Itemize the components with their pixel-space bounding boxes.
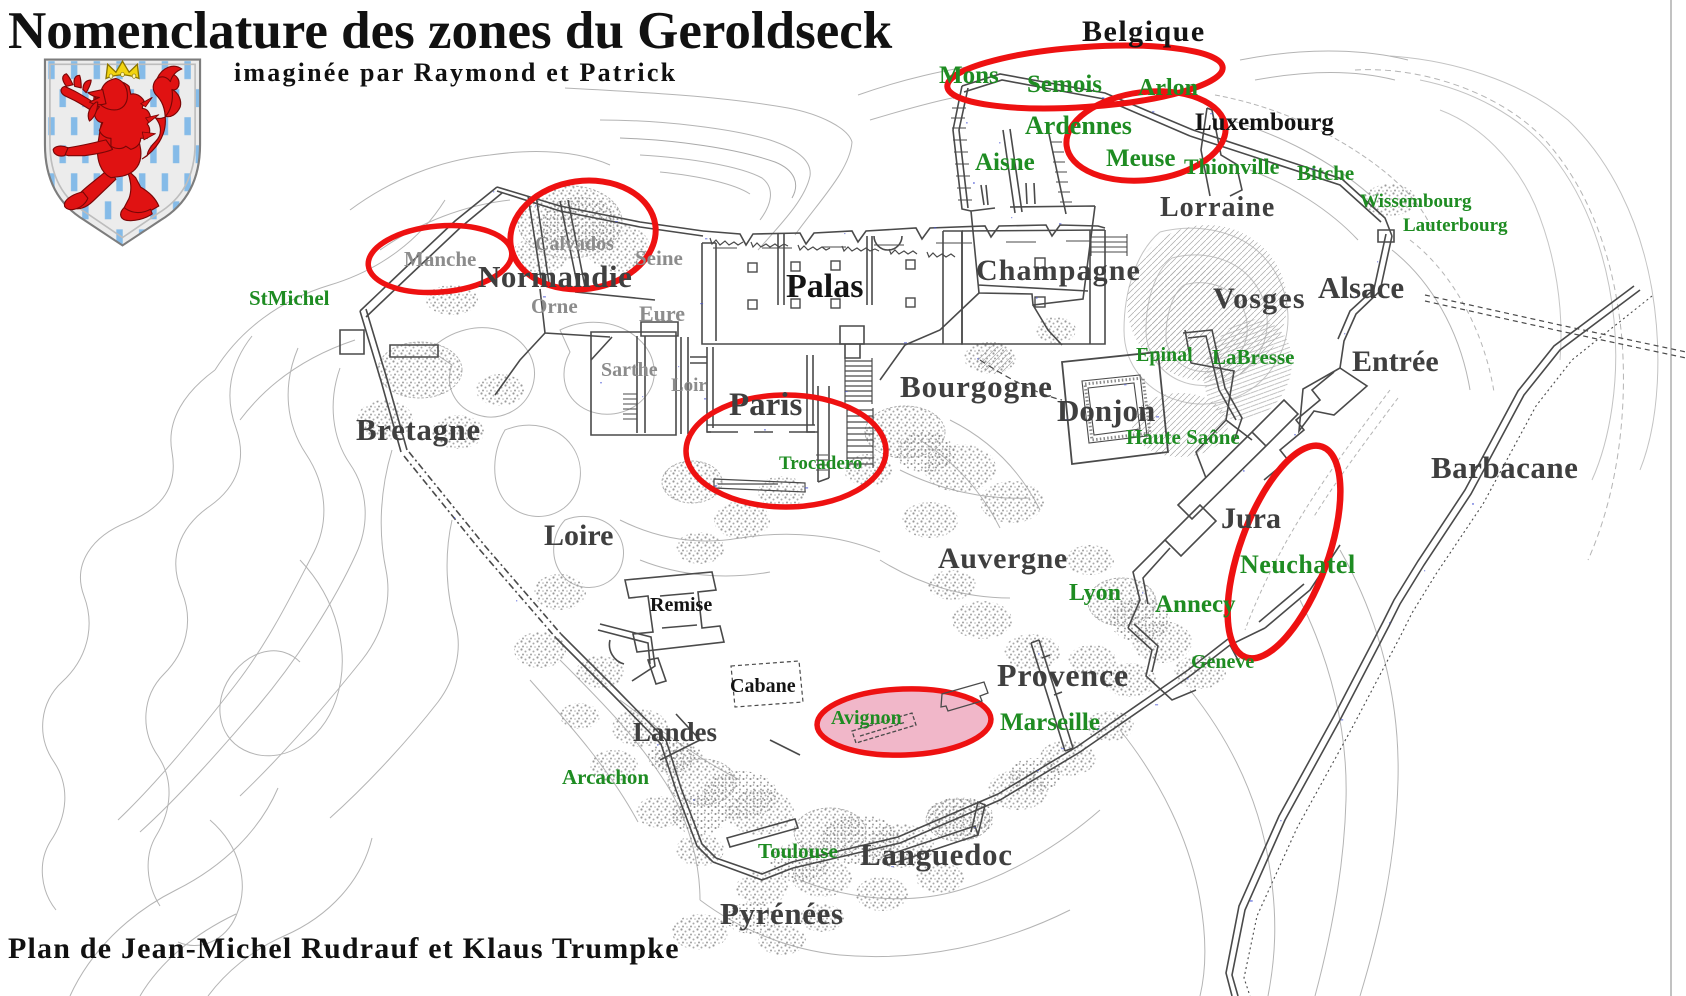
svg-text:Avignon: Avignon	[831, 707, 902, 729]
svg-text:Lorraine: Lorraine	[1160, 192, 1275, 223]
svg-text:Entrée: Entrée	[1352, 345, 1439, 378]
svg-text:Nomenclature des zones du Gero: Nomenclature des zones du Geroldseck	[8, 2, 893, 60]
svg-text:Meuse: Meuse	[1106, 145, 1175, 172]
svg-text:Auvergne: Auvergne	[938, 542, 1068, 575]
svg-text:Arcachon: Arcachon	[562, 765, 649, 789]
svg-text:Eure: Eure	[639, 301, 685, 326]
svg-text:Jura: Jura	[1221, 502, 1281, 535]
svg-text:Haute Saône: Haute Saône	[1126, 425, 1240, 449]
svg-text:imaginée par Raymond et Patric: imaginée par Raymond et Patrick	[234, 58, 677, 87]
svg-text:Barbacane: Barbacane	[1431, 450, 1578, 485]
svg-text:Manche: Manche	[404, 247, 476, 271]
svg-text:Wissembourg: Wissembourg	[1360, 191, 1472, 212]
svg-text:Landes: Landes	[633, 717, 717, 747]
svg-text:Neuchatel: Neuchatel	[1240, 550, 1356, 579]
svg-text:Normandie: Normandie	[478, 259, 632, 294]
svg-text:Geneve: Geneve	[1191, 651, 1254, 673]
svg-text:Champagne: Champagne	[976, 254, 1141, 287]
svg-text:Pyrénées: Pyrénées	[720, 896, 844, 931]
svg-text:Paris: Paris	[729, 387, 802, 423]
svg-text:Ardennes: Ardennes	[1025, 111, 1132, 140]
svg-text:Orne: Orne	[531, 294, 578, 318]
svg-text:Arlon: Arlon	[1138, 75, 1198, 101]
svg-text:LaBresse: LaBresse	[1212, 345, 1294, 369]
svg-text:Trocadero: Trocadero	[779, 453, 862, 474]
svg-text:Calvados: Calvados	[535, 233, 614, 255]
svg-text:Aisne: Aisne	[975, 149, 1035, 176]
svg-text:Palas: Palas	[786, 268, 863, 305]
svg-text:Loire: Loire	[544, 519, 613, 552]
svg-text:StMichel: StMichel	[249, 286, 330, 310]
svg-text:Alsace: Alsace	[1318, 270, 1404, 305]
svg-text:Thionville: Thionville	[1184, 154, 1280, 179]
svg-text:Mons: Mons	[939, 62, 999, 89]
svg-text:Sarthe: Sarthe	[601, 359, 658, 381]
svg-text:Donjon: Donjon	[1057, 393, 1155, 428]
svg-text:Plan de Jean-Michel Rudrauf et: Plan de Jean-Michel Rudrauf et Klaus Tru…	[8, 932, 680, 965]
svg-text:Remise: Remise	[650, 594, 712, 616]
svg-text:Lyon: Lyon	[1069, 580, 1121, 606]
svg-text:Luxembourg: Luxembourg	[1195, 109, 1334, 136]
svg-text:Epinal: Epinal	[1136, 344, 1193, 366]
svg-text:Cabane: Cabane	[730, 675, 796, 697]
svg-text:Marseille: Marseille	[1000, 709, 1100, 736]
svg-text:Belgique: Belgique	[1082, 15, 1206, 48]
svg-text:Annecy: Annecy	[1155, 591, 1236, 618]
svg-text:Loir: Loir	[671, 375, 707, 396]
svg-text:Vosges: Vosges	[1213, 282, 1306, 315]
svg-text:Languedoc: Languedoc	[860, 837, 1013, 872]
svg-text:Bretagne: Bretagne	[356, 412, 481, 447]
svg-text:Toulouse: Toulouse	[758, 839, 838, 863]
svg-text:Bourgogne: Bourgogne	[900, 369, 1053, 404]
svg-text:Semois: Semois	[1027, 71, 1102, 98]
svg-text:Bitche: Bitche	[1297, 161, 1354, 185]
svg-text:Lauterbourg: Lauterbourg	[1403, 215, 1508, 236]
svg-text:Seine: Seine	[635, 246, 683, 270]
svg-text:Provence: Provence	[997, 657, 1129, 693]
